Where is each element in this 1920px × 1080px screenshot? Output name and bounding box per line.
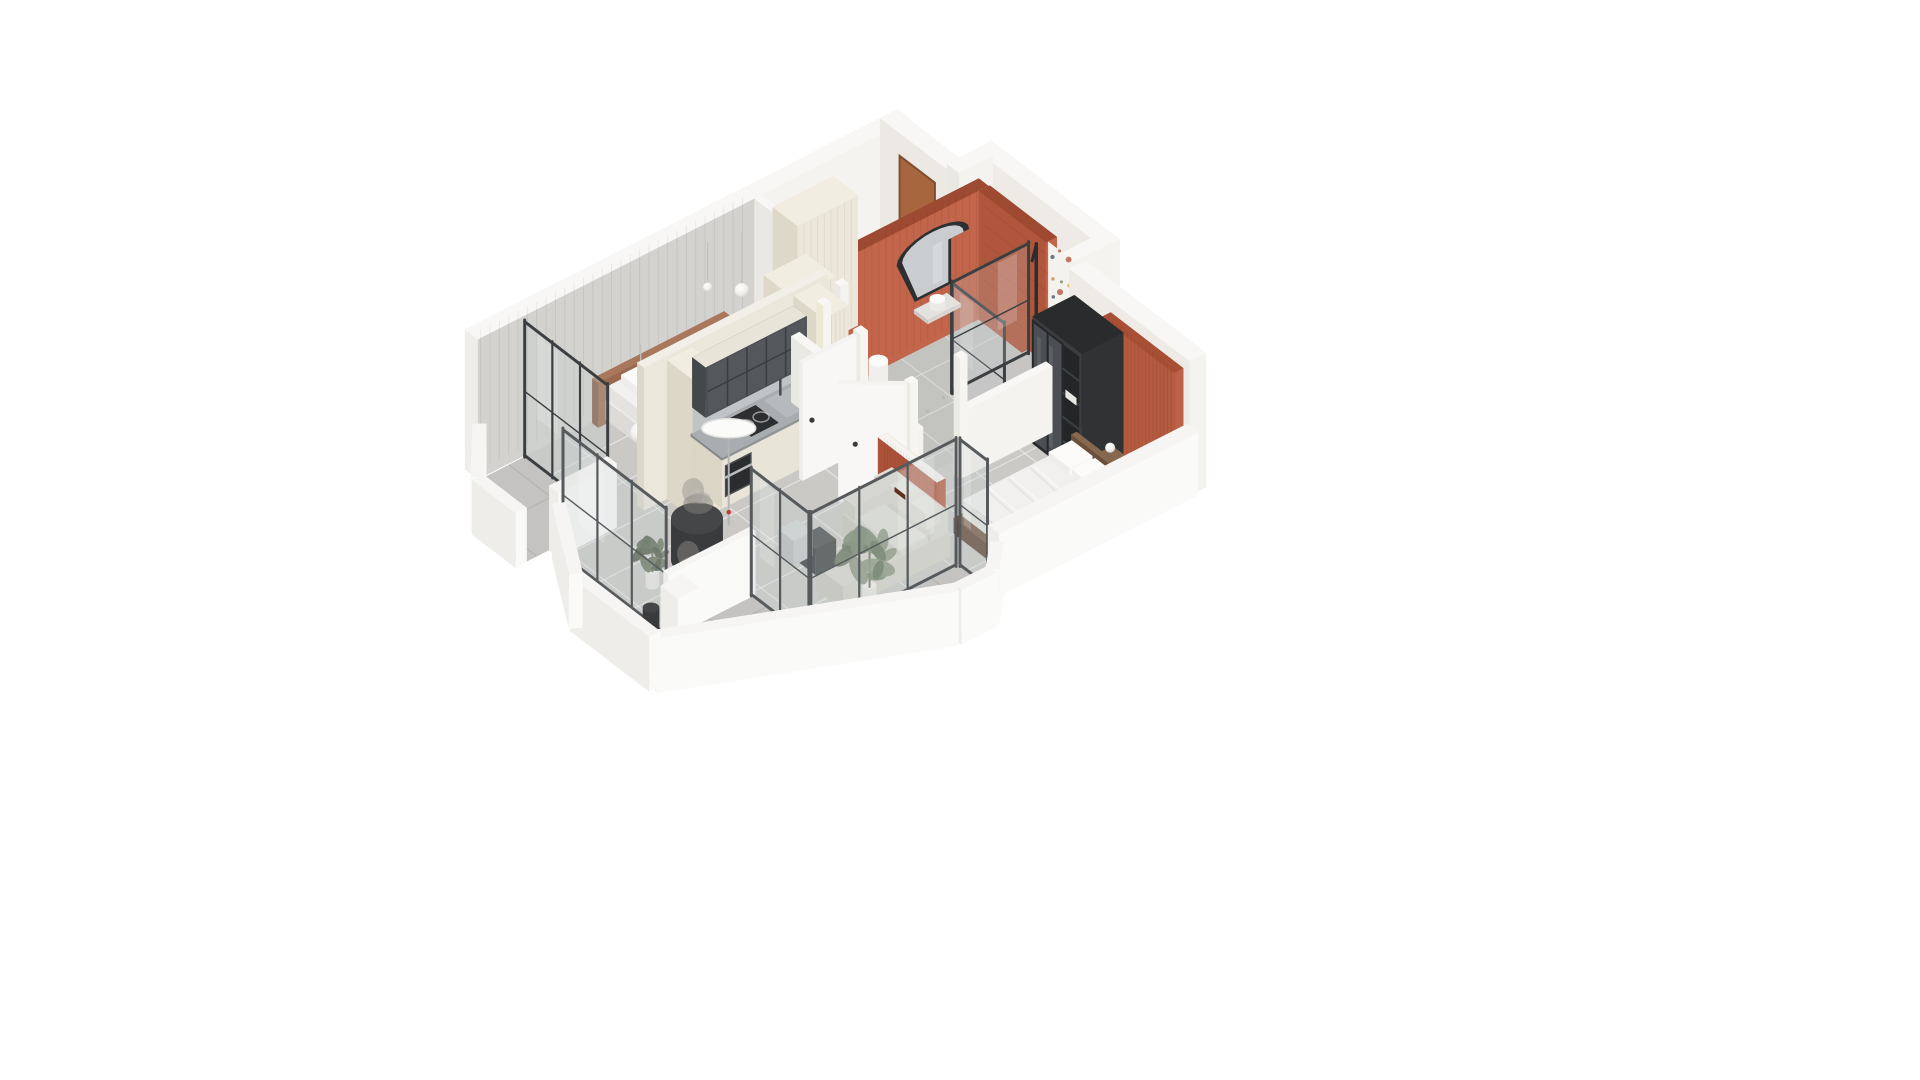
nightstand-ball-lamp [1105,443,1115,453]
bathroom-door-handle [809,418,814,423]
bedroom2-balcony-glazing [960,438,988,588]
bathroom-sink-bowl [929,294,945,311]
page-background [0,0,1920,1080]
apartment-3d-floorplan [0,0,1920,1080]
bedroom2-door-handle [853,442,858,447]
